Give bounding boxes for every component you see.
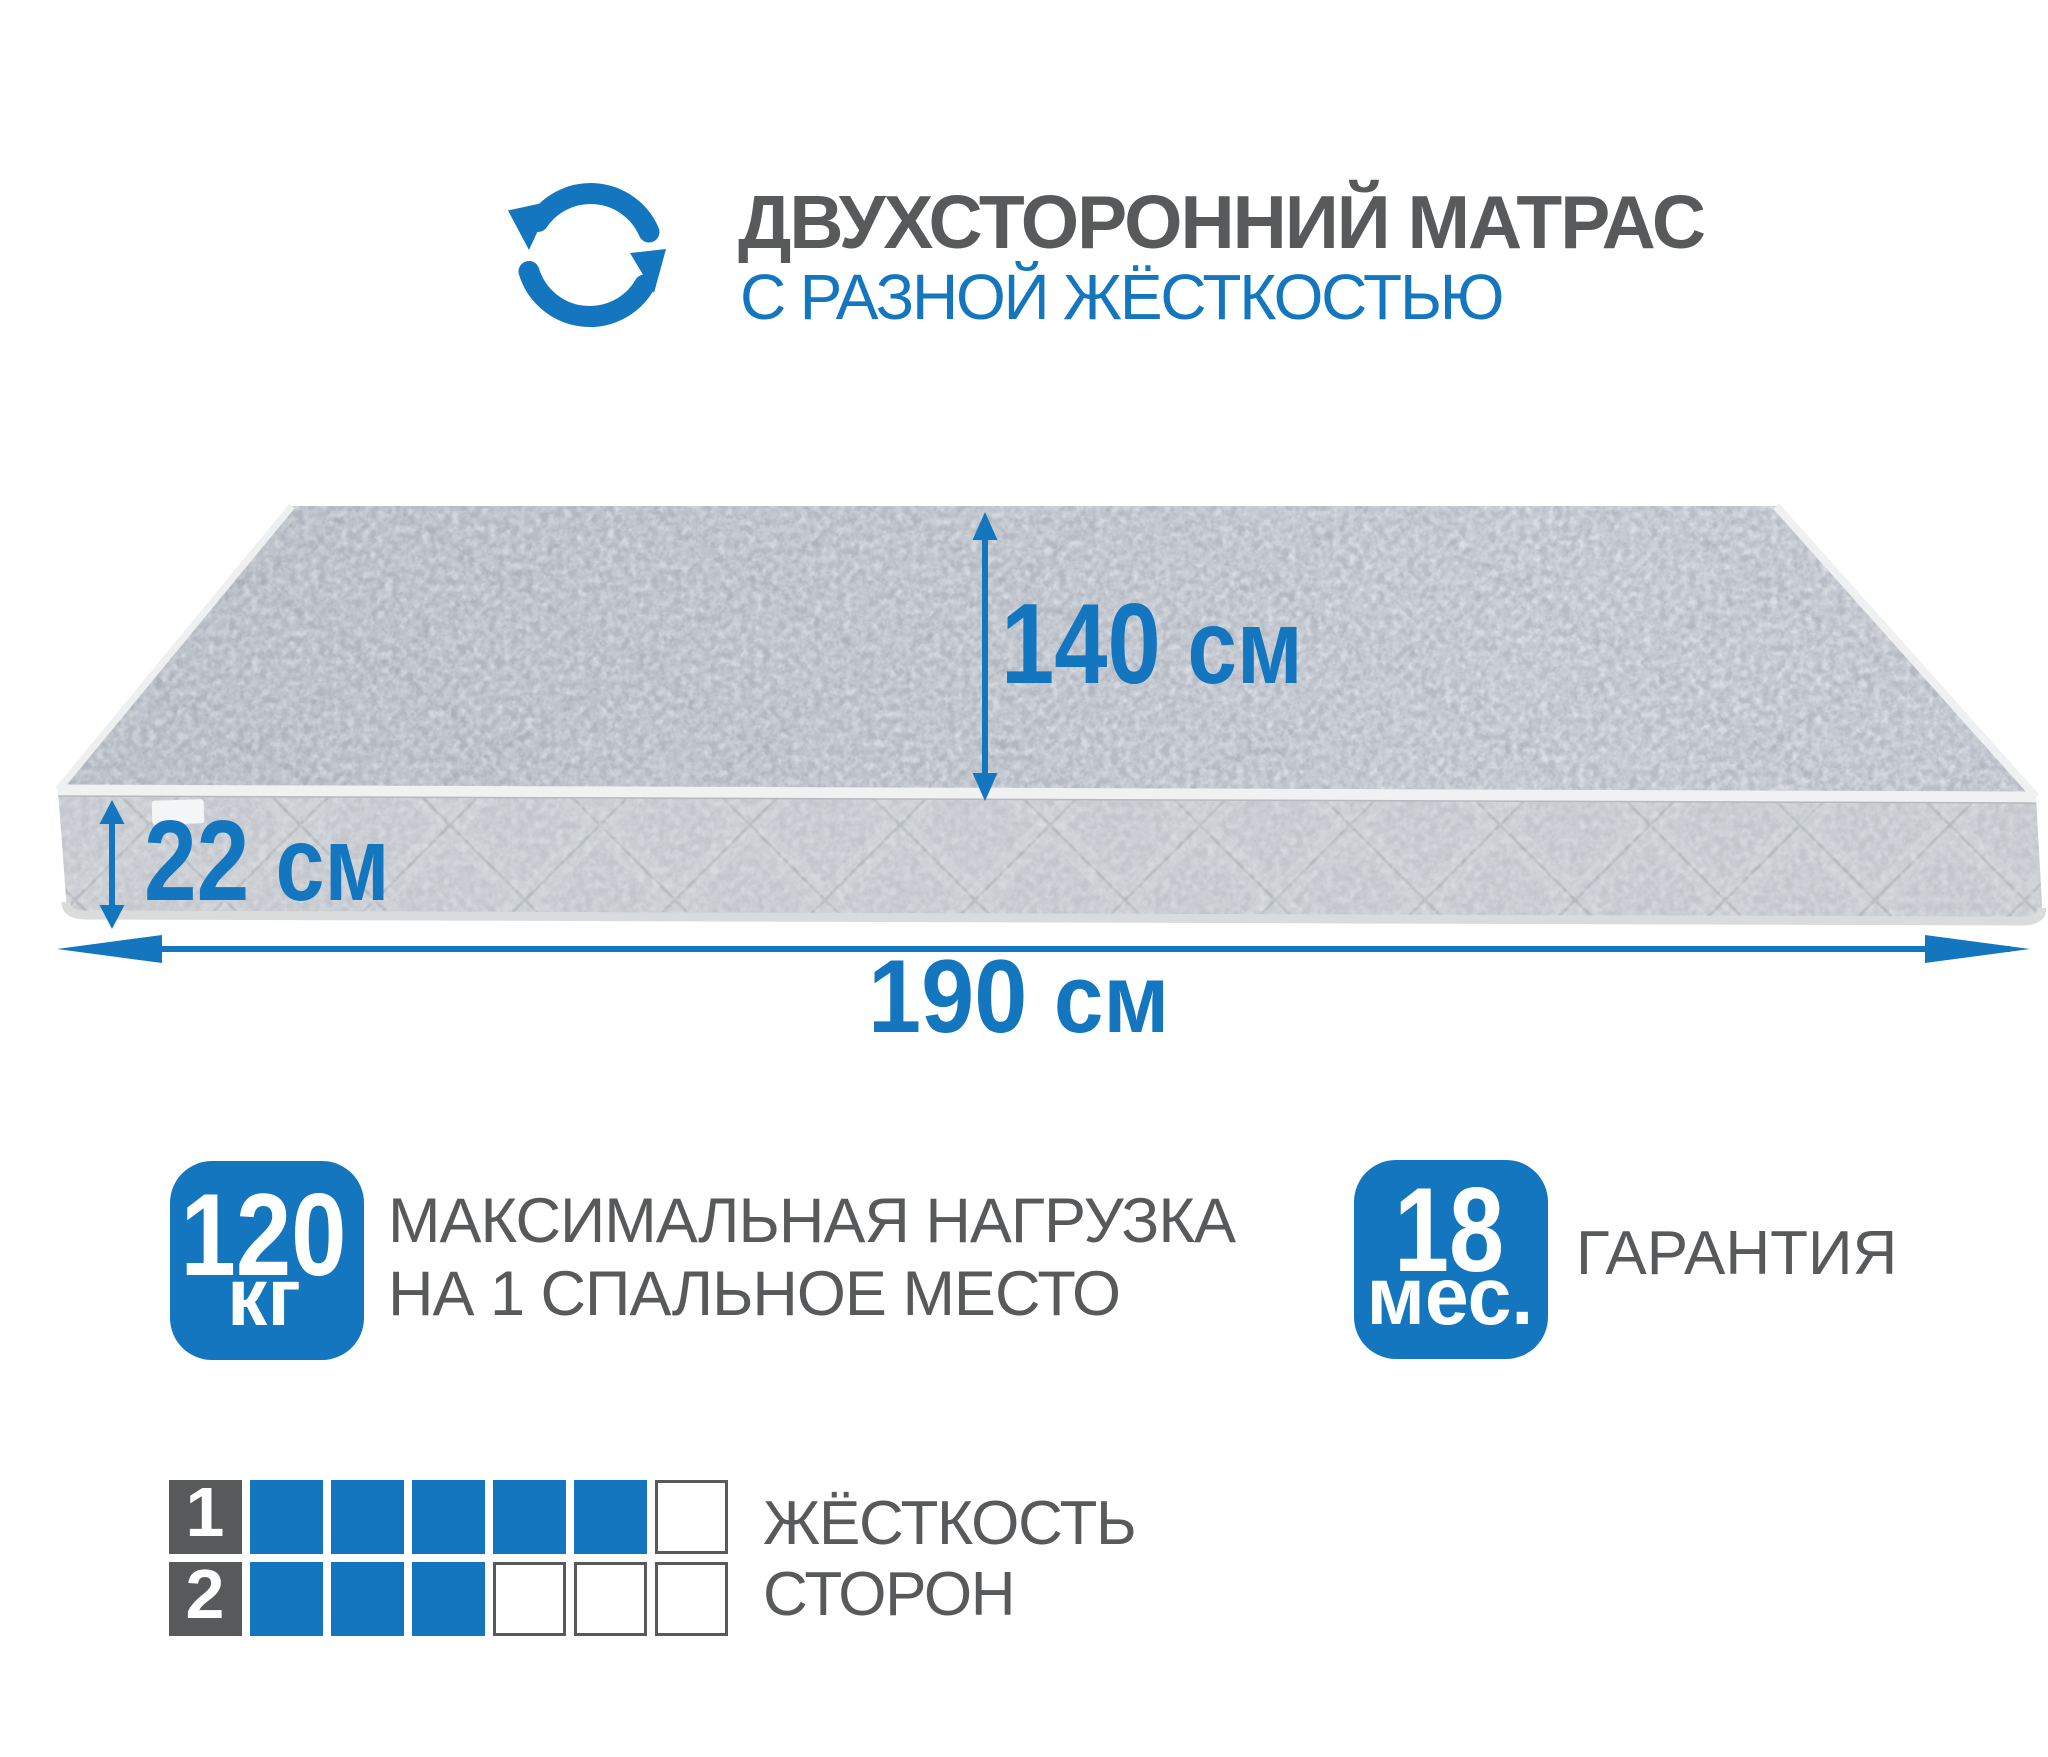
svg-text:1: 1 bbox=[186, 1473, 225, 1551]
svg-text:2: 2 bbox=[186, 1555, 225, 1633]
